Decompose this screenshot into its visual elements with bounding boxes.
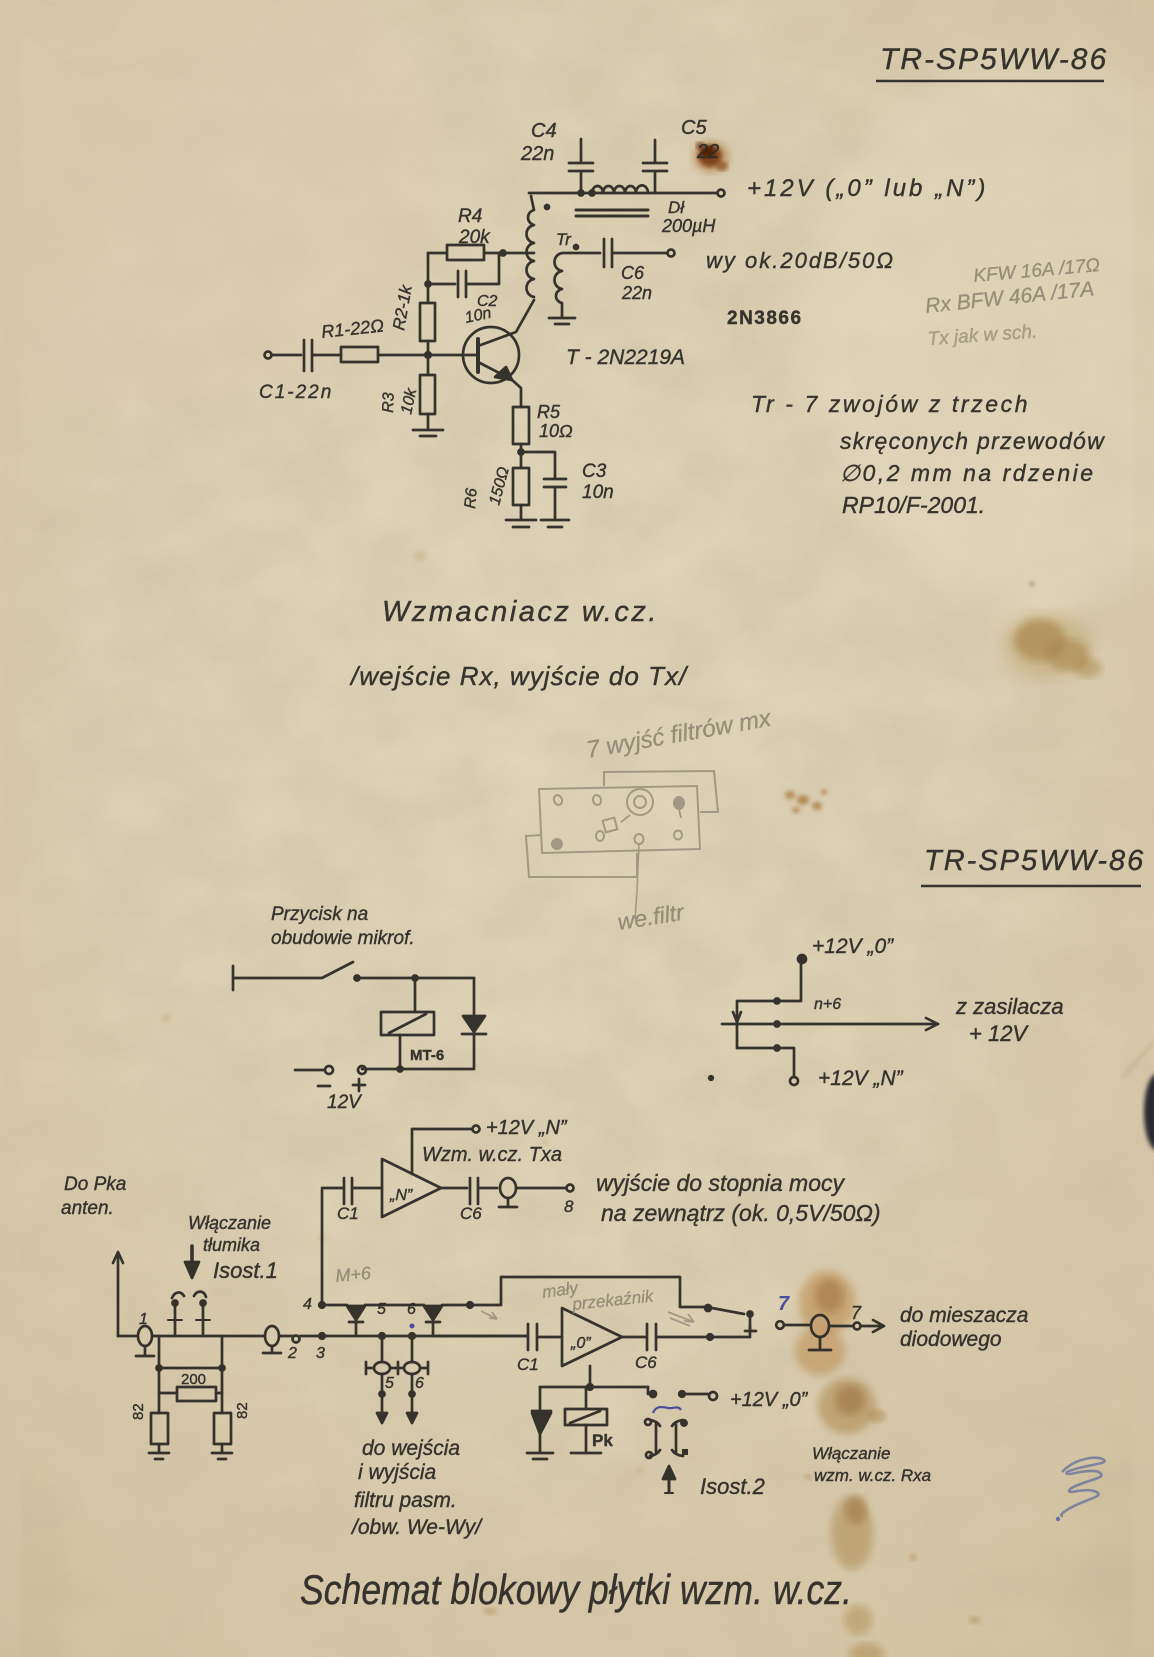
svg-text:C1: C1: [337, 1204, 359, 1223]
svg-text:/obw. We-Wy/: /obw. We-Wy/: [350, 1516, 483, 1539]
svg-text:Wzm. w.cz. Txa: Wzm. w.cz. Txa: [422, 1144, 562, 1166]
svg-text:Schemat blokowy płytki wzm. w.: Schemat blokowy płytki wzm. w.cz.: [300, 1566, 852, 1613]
svg-text:wy ok.20dB/50Ω: wy ok.20dB/50Ω: [706, 248, 895, 273]
svg-text:5: 5: [377, 1301, 386, 1318]
svg-text:200µH: 200µH: [661, 216, 716, 236]
svg-text:C6: C6: [621, 263, 645, 283]
svg-text:22n: 22n: [621, 283, 652, 303]
svg-text:5: 5: [385, 1375, 394, 1392]
svg-text:2: 2: [287, 1345, 297, 1362]
svg-text:4: 4: [303, 1296, 312, 1313]
svg-text:wzm. w.cz. Rxa: wzm. w.cz. Rxa: [814, 1466, 931, 1485]
svg-text:Isost.2: Isost.2: [700, 1474, 765, 1499]
svg-text:C5: C5: [681, 117, 707, 139]
svg-text:Dł: Dł: [668, 198, 685, 217]
svg-text:C6: C6: [635, 1353, 657, 1372]
svg-text:200: 200: [181, 1371, 206, 1388]
svg-text:∅0,2 mm na rdzenie: ∅0,2 mm na rdzenie: [840, 460, 1096, 486]
svg-text:Tr: Tr: [556, 230, 572, 249]
svg-text:22: 22: [696, 141, 719, 163]
svg-text:wyjście do stopnia mocy: wyjście do stopnia mocy: [596, 1170, 845, 1196]
svg-text:+12V „0”: +12V „0”: [812, 935, 894, 958]
svg-text:R3: R3: [380, 392, 398, 413]
svg-text:Przycisk na: Przycisk na: [271, 904, 368, 925]
svg-text:8: 8: [564, 1197, 574, 1216]
svg-text:Do Pka: Do Pka: [64, 1174, 126, 1195]
svg-text:12V: 12V: [327, 1092, 363, 1113]
svg-text:7: 7: [778, 1293, 790, 1315]
svg-text:Tr - 7 zwojów z trzech: Tr - 7 zwojów z trzech: [751, 391, 1030, 417]
svg-text:filtru pasm.: filtru pasm.: [354, 1489, 457, 1512]
svg-text:obudowie mikrof.: obudowie mikrof.: [271, 928, 415, 949]
svg-text:M+6: M+6: [335, 1263, 373, 1286]
svg-text:na zewnątrz (ok. 0,5V/50Ω): na zewnątrz (ok. 0,5V/50Ω): [601, 1200, 881, 1226]
svg-text:R6: R6: [462, 487, 481, 509]
svg-text:20k: 20k: [458, 227, 491, 248]
svg-text:22n: 22n: [520, 143, 554, 165]
svg-text:diodowego: diodowego: [900, 1328, 1002, 1351]
svg-text:anten.: anten.: [61, 1198, 114, 1219]
svg-text:+12V („0” lub „N”): +12V („0” lub „N”): [747, 175, 988, 202]
svg-text:10n: 10n: [582, 482, 614, 503]
svg-text:i wyjścia: i wyjścia: [358, 1461, 436, 1484]
svg-text:Pk: Pk: [592, 1431, 613, 1450]
svg-text:+12V „N”: +12V „N”: [486, 1117, 568, 1139]
svg-text:do wejścia: do wejścia: [362, 1437, 460, 1460]
svg-text:R5: R5: [537, 402, 561, 422]
svg-text:Wzmacniacz w.cz.: Wzmacniacz w.cz.: [382, 596, 659, 628]
svg-text:C6: C6: [460, 1204, 482, 1223]
svg-text:skręconych przewodów: skręconych przewodów: [840, 428, 1105, 454]
svg-text:2N3866: 2N3866: [727, 308, 803, 329]
svg-text:+12V „0”: +12V „0”: [730, 1389, 809, 1411]
svg-text:Isost.1: Isost.1: [213, 1258, 278, 1283]
svg-text:1: 1: [139, 1311, 148, 1328]
svg-text:3: 3: [316, 1345, 325, 1362]
svg-text:tłumika: tłumika: [203, 1235, 260, 1255]
svg-text:82: 82: [234, 1402, 251, 1419]
svg-text:MT-6: MT-6: [410, 1047, 444, 1064]
svg-text:T - 2N2219A: T - 2N2219A: [566, 346, 685, 369]
svg-text:6: 6: [407, 1301, 416, 1318]
svg-text:Włączanie: Włączanie: [188, 1213, 271, 1233]
svg-text:„0”: „0”: [570, 1335, 591, 1352]
svg-text:C1-22n: C1-22n: [259, 382, 333, 403]
svg-text:Włączanie: Włączanie: [812, 1444, 890, 1463]
svg-text:+ 12V: + 12V: [969, 1021, 1029, 1046]
svg-text:7: 7: [851, 1303, 862, 1323]
svg-text:TR-SP5WW-86: TR-SP5WW-86: [924, 845, 1145, 877]
svg-text:10Ω: 10Ω: [539, 421, 573, 441]
svg-text:„N”: „N”: [389, 1187, 413, 1204]
svg-text:/wejście Rx, wyjście do Tx/: /wejście Rx, wyjście do Tx/: [349, 661, 689, 691]
svg-text:TR-SP5WW-86: TR-SP5WW-86: [880, 43, 1108, 76]
svg-text:6: 6: [415, 1375, 424, 1392]
svg-text:+12V „N”: +12V „N”: [818, 1067, 904, 1090]
svg-text:RP10/F-2001.: RP10/F-2001.: [842, 492, 985, 518]
svg-text:C4: C4: [531, 120, 557, 142]
svg-text:z zasilacza: z zasilacza: [955, 994, 1064, 1019]
svg-text:do mieszacza: do mieszacza: [900, 1304, 1028, 1327]
svg-text:82: 82: [130, 1403, 147, 1420]
svg-text:C3: C3: [582, 461, 607, 482]
svg-text:n+6: n+6: [814, 996, 841, 1013]
svg-text:R4: R4: [458, 206, 482, 227]
svg-text:C1: C1: [517, 1355, 539, 1374]
